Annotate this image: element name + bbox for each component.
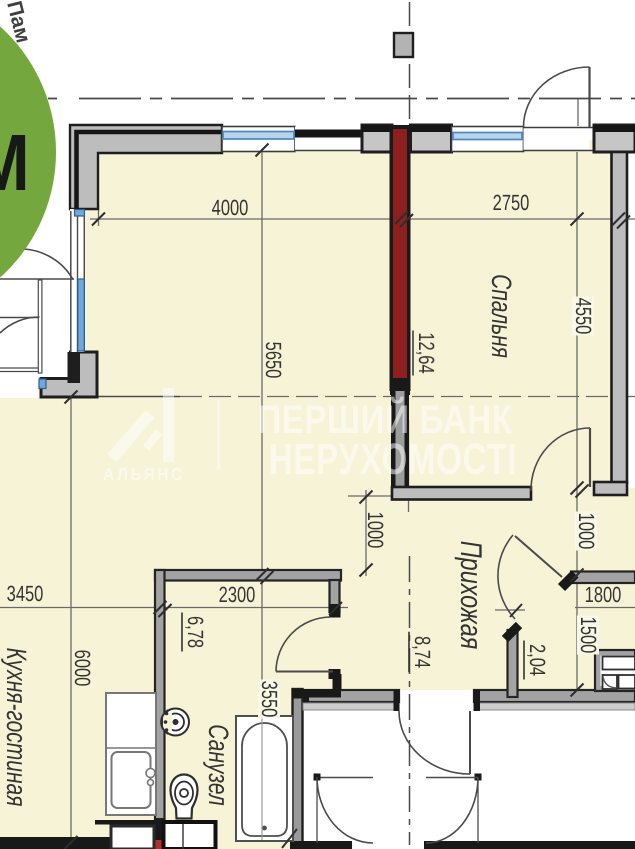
svg-text:1500: 1500 (576, 617, 601, 654)
svg-text:Прихожая: Прихожая (454, 541, 487, 650)
svg-text:2,04: 2,04 (525, 644, 550, 676)
svg-text:3550: 3550 (257, 681, 282, 718)
svg-text:Кухня-гостиная: Кухня-гостиная (1, 648, 32, 807)
svg-text:4550: 4550 (571, 298, 596, 335)
svg-text:4000: 4000 (212, 195, 249, 220)
svg-text:2300: 2300 (219, 582, 256, 607)
svg-text:8,74: 8,74 (410, 636, 435, 668)
svg-text:5650: 5650 (261, 342, 286, 379)
svg-text:АЛЬЯНС: АЛЬЯНС (103, 465, 185, 484)
svg-text:1000: 1000 (363, 512, 388, 549)
svg-text:Спальня: Спальня (486, 274, 517, 358)
svg-text:6000: 6000 (70, 650, 95, 687)
svg-text:НЕРУХОМОСТІ: НЕРУХОМОСТІ (269, 435, 518, 484)
svg-text:Санузел: Санузел (203, 724, 234, 806)
svg-text:М: М (0, 118, 30, 207)
svg-text:2750: 2750 (493, 190, 530, 215)
svg-text:1000: 1000 (574, 513, 599, 550)
svg-text:6,78: 6,78 (183, 616, 208, 648)
svg-text:12,64: 12,64 (414, 332, 439, 373)
svg-text:1800: 1800 (585, 582, 622, 607)
svg-text:3450: 3450 (7, 581, 44, 606)
